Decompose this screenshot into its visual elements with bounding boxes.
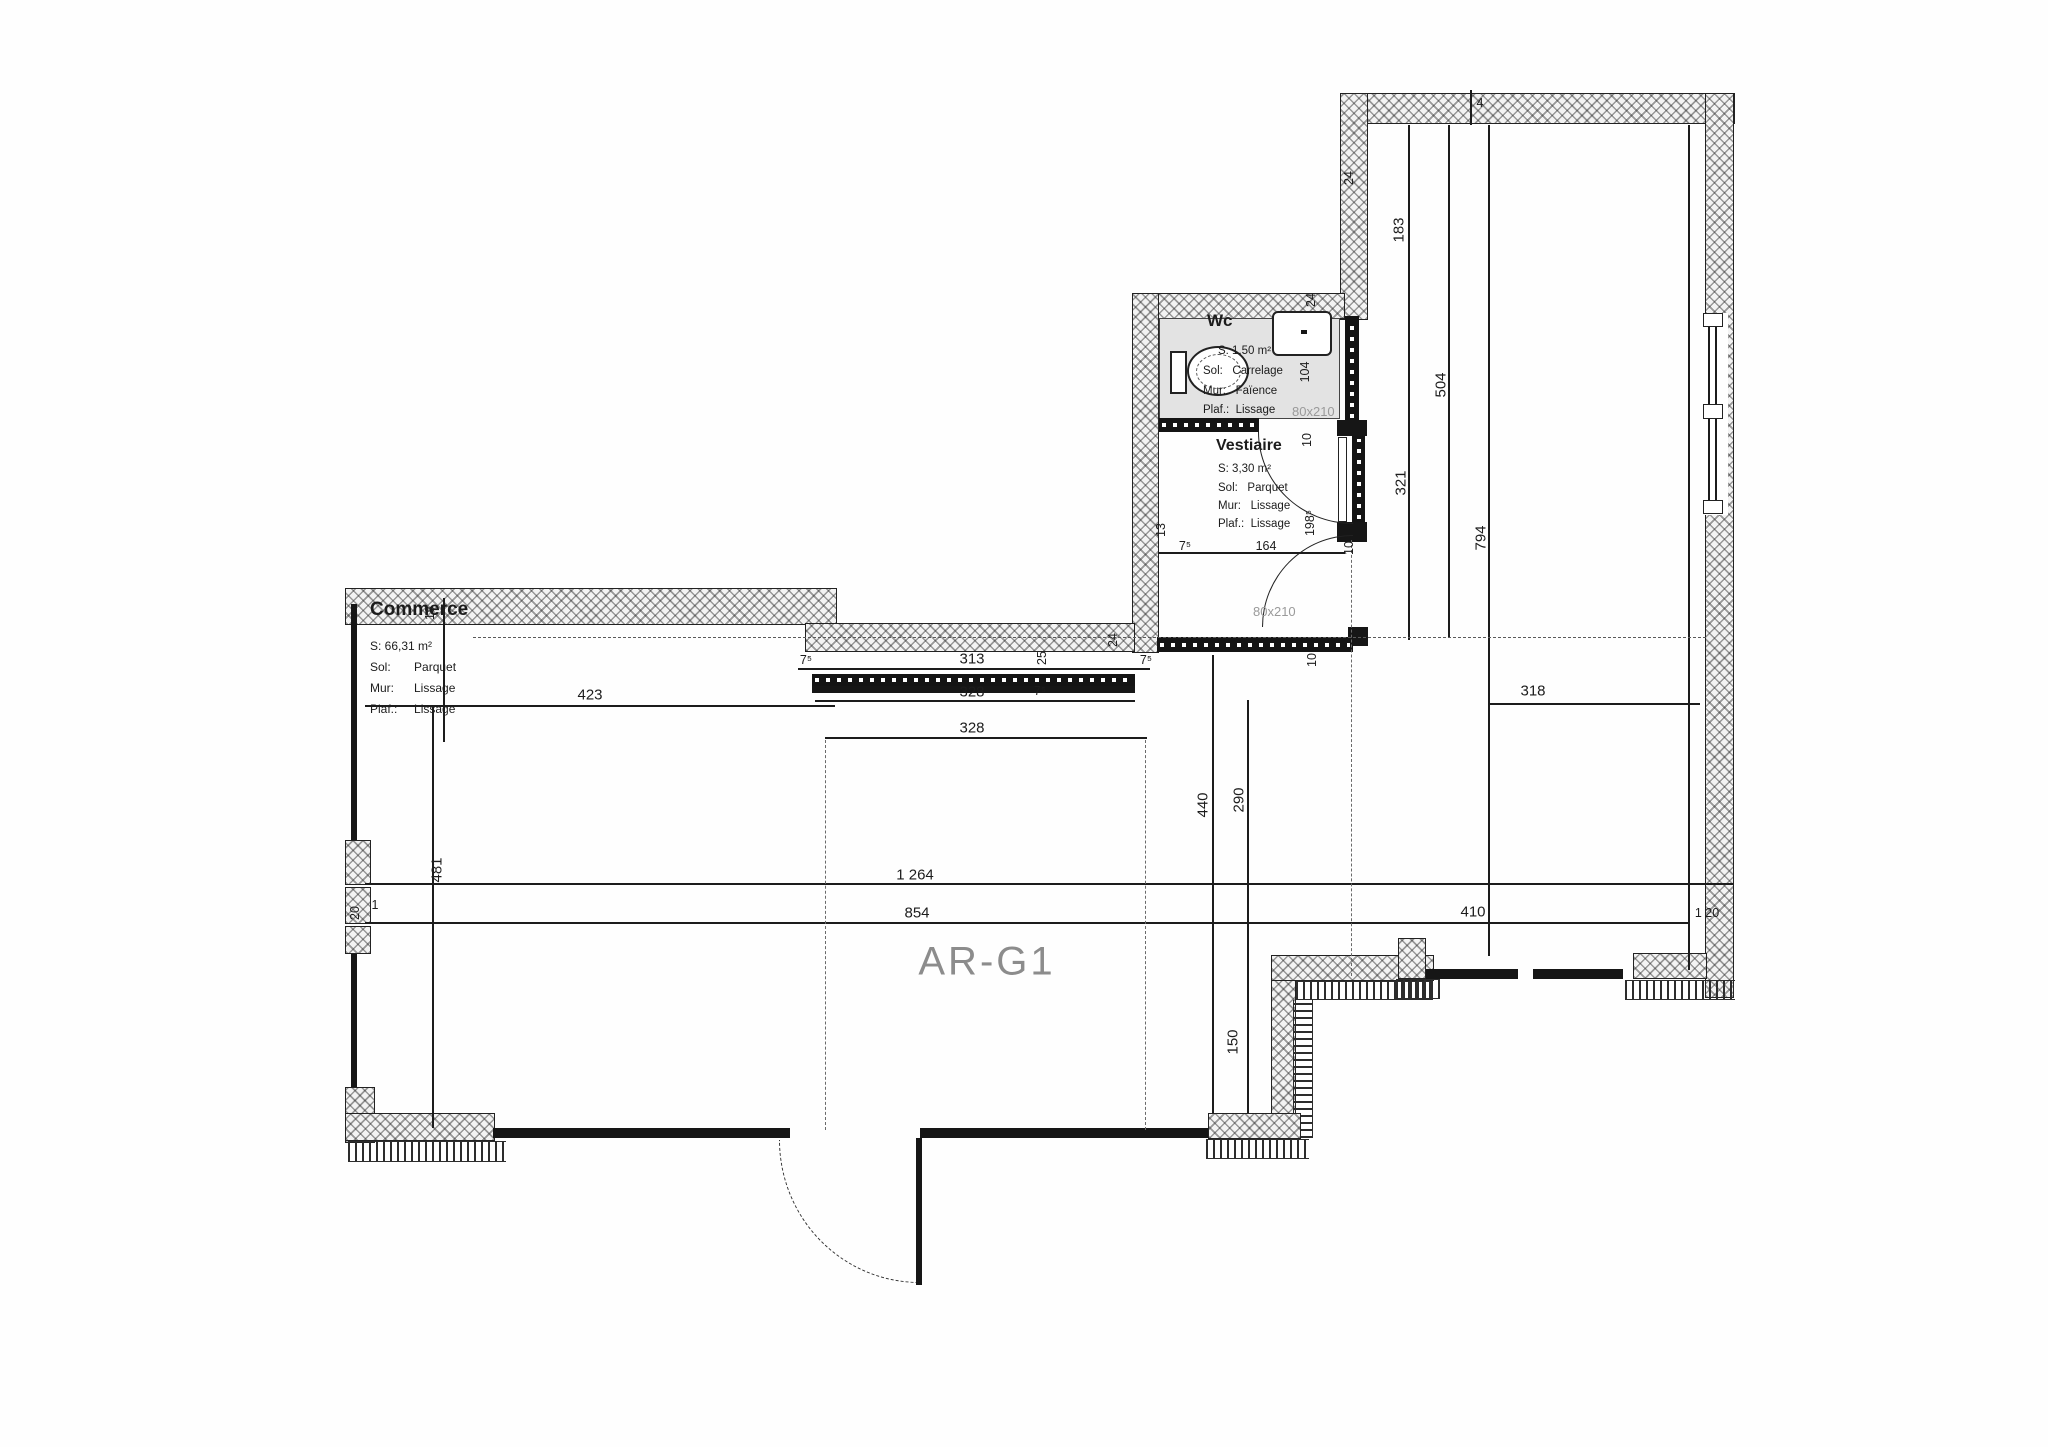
wall-bottom-segment bbox=[493, 1128, 790, 1138]
axis-vertical bbox=[1351, 540, 1352, 976]
wc-title: Wc bbox=[1207, 312, 1233, 329]
commerce-title: Commerce bbox=[370, 600, 468, 619]
wall-bottom-segment bbox=[920, 1128, 1210, 1138]
dim-321: 321 bbox=[1393, 470, 1410, 495]
washbasin-drain bbox=[1301, 330, 1307, 334]
wall-left-pier bbox=[345, 840, 371, 885]
window-sill-rw-right bbox=[1625, 980, 1735, 1000]
vestiaire-sol: Sol: Parquet bbox=[1218, 483, 1288, 495]
wall-left-upper bbox=[351, 604, 357, 840]
storefront-rw-segment bbox=[1426, 969, 1518, 979]
dim-410: 410 bbox=[1460, 904, 1485, 921]
floor-plan: Commerce S: 66,31 m² Sol: Parquet Mur: L… bbox=[0, 0, 2048, 1447]
wall-pier-bottom-mid bbox=[1208, 1113, 1301, 1139]
dim-line-854-410 bbox=[365, 922, 1690, 924]
window-sill-rw-left bbox=[1396, 979, 1440, 999]
wall-top-right-wing bbox=[1340, 93, 1735, 124]
dim-tick-4 bbox=[1470, 90, 1472, 125]
wall-vestiaire-right bbox=[1352, 436, 1365, 522]
dim-1: 1 bbox=[372, 898, 379, 912]
wall-wc-bottom bbox=[1159, 418, 1259, 432]
window-sill-bottom-left bbox=[348, 1141, 506, 1162]
dim-504: 504 bbox=[1433, 372, 1450, 397]
dim-290: 290 bbox=[1231, 787, 1248, 812]
dim-4: 4 bbox=[1477, 96, 1484, 110]
dim-line-481 bbox=[432, 705, 434, 1128]
dim-10: 10 bbox=[1305, 653, 1319, 667]
vestiaire-plaf: Plaf.: Lissage bbox=[1218, 519, 1290, 531]
dim-423: 423 bbox=[577, 687, 602, 704]
wc-plaf: Plaf.: Lissage bbox=[1203, 405, 1275, 417]
window-mullion bbox=[1703, 404, 1723, 419]
vestiaire-title: Vestiaire bbox=[1216, 438, 1282, 454]
dim-150: 150 bbox=[1225, 1029, 1242, 1054]
wall-wc-left bbox=[1132, 293, 1159, 653]
wall-pier-rw-bottom bbox=[1398, 938, 1426, 979]
wc-mur: Mur: Faïence bbox=[1203, 386, 1277, 398]
dim-24: 24 bbox=[1342, 171, 1356, 185]
window-sill-bottom-mid bbox=[1206, 1139, 1309, 1159]
vestiaire-door-size-label: 80x210 bbox=[1253, 605, 1296, 618]
dim-line-440 bbox=[1212, 655, 1214, 1113]
commerce-sol: Sol: Parquet bbox=[370, 661, 456, 673]
dim-481: 481 bbox=[429, 857, 446, 882]
dim-line-318 bbox=[1490, 703, 1700, 705]
vestiaire-mur: Mur: Lissage bbox=[1218, 501, 1290, 513]
dim-13: 13 bbox=[1154, 523, 1168, 537]
dim-328: 328 bbox=[959, 684, 984, 701]
dim-164: 164 bbox=[1256, 539, 1277, 553]
dim-24: 24 bbox=[1106, 633, 1120, 647]
dim-104: 104 bbox=[1298, 362, 1312, 383]
wc-door-size-label: 80x210 bbox=[1292, 405, 1335, 418]
dim-318: 318 bbox=[1520, 683, 1545, 700]
projection-line bbox=[1145, 740, 1146, 1130]
wall-vestiaire-bottom bbox=[1157, 637, 1353, 652]
dim-18: 18 bbox=[423, 606, 437, 620]
dim-line-313 bbox=[798, 668, 1150, 670]
window-mullion bbox=[1703, 313, 1723, 327]
wc-surface: S: 1,50 m² bbox=[1218, 346, 1271, 358]
wall-wc-right bbox=[1345, 316, 1359, 421]
entry-door-swing-arc bbox=[779, 1140, 920, 1283]
dim-line-290-150 bbox=[1247, 700, 1249, 1113]
dim-line-183-321 bbox=[1408, 125, 1410, 640]
dim-794: 794 bbox=[1473, 525, 1490, 550]
dim-75: 7⁵ bbox=[1034, 684, 1046, 698]
dim-1264: 1 264 bbox=[896, 867, 934, 884]
dim-313: 313 bbox=[959, 651, 984, 668]
dim-line-328b bbox=[825, 737, 1147, 739]
dim-line-1264 bbox=[365, 883, 1733, 885]
dim-198: 198⁵ bbox=[1303, 510, 1317, 536]
dim-183: 183 bbox=[1391, 217, 1408, 242]
unit-label: AR-G1 bbox=[918, 940, 1055, 985]
wall-bottom-left-arm bbox=[345, 1113, 495, 1141]
dim-75: 7⁵ bbox=[1140, 653, 1152, 667]
toilet-tank bbox=[1170, 351, 1187, 394]
entry-door-leaf bbox=[916, 1138, 922, 1285]
dim-854: 854 bbox=[904, 905, 929, 922]
wall-left-right-wing bbox=[1340, 93, 1368, 320]
wall-left-pier bbox=[345, 926, 371, 954]
dim-120: 1 20 bbox=[1695, 906, 1719, 920]
dim-24: 24 bbox=[1304, 293, 1318, 307]
wc-sol: Sol: Carrelage bbox=[1203, 366, 1283, 378]
storefront-rw-segment bbox=[1533, 969, 1623, 979]
wall-rw-bottom-right bbox=[1633, 953, 1707, 979]
dim-328: 328 bbox=[959, 720, 984, 737]
dim-75: 7⁵ bbox=[1179, 539, 1191, 553]
axis-horizontal bbox=[473, 637, 1706, 638]
vestiaire-surface: S: 3,30 m² bbox=[1218, 464, 1271, 476]
commerce-mur: Mur: Lissage bbox=[370, 682, 455, 694]
dim-25: 25 bbox=[1035, 651, 1049, 665]
projection-line bbox=[825, 740, 826, 1130]
dim-75: 7⁵ bbox=[800, 653, 812, 667]
wall-left-lower bbox=[351, 954, 357, 1089]
dim-line-right-face bbox=[1688, 125, 1690, 970]
dim-440: 440 bbox=[1195, 792, 1212, 817]
wall-right-right-wing bbox=[1705, 93, 1734, 998]
window-mullion bbox=[1703, 500, 1723, 514]
dim-10: 10 bbox=[1342, 541, 1356, 555]
dim-20: 20 bbox=[348, 906, 362, 920]
commerce-plaf: Plaf.: Lissage bbox=[370, 703, 455, 715]
dim-10: 10 bbox=[1300, 433, 1314, 447]
commerce-surface: S: 66,31 m² bbox=[370, 640, 432, 652]
